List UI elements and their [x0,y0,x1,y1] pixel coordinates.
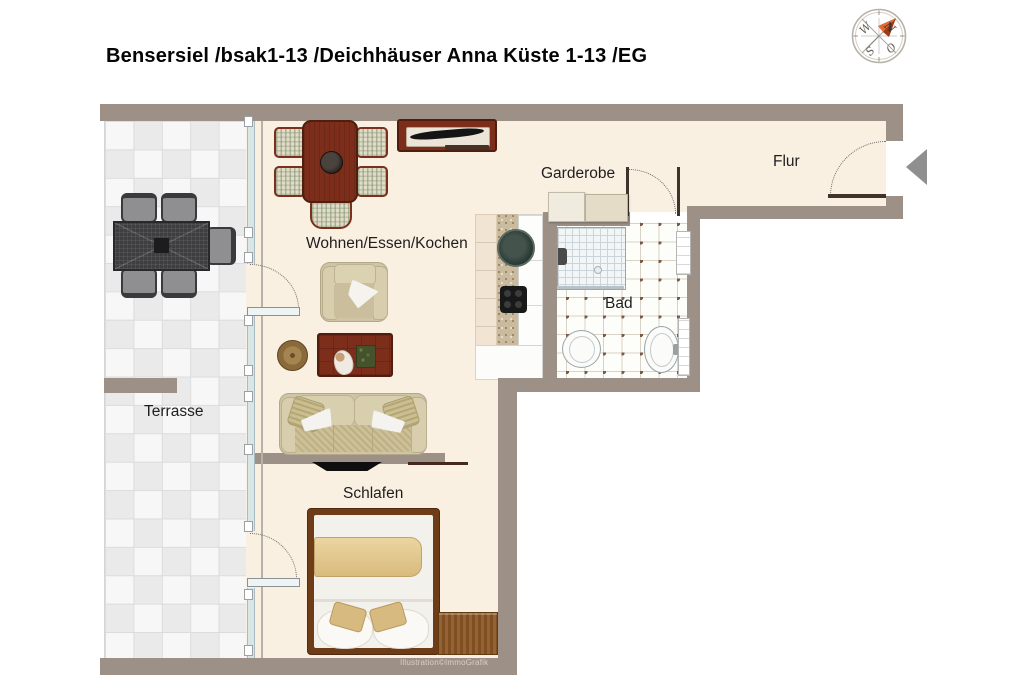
kitchen-base-cabinet [475,345,543,380]
wall-right-upper [886,104,903,141]
entrance-door [828,194,886,198]
wall-bathroom-bottom [498,378,700,392]
window-frame-block [244,315,253,326]
dresser [438,612,498,655]
dining-chair [356,166,388,197]
armchair [320,262,388,322]
coffee-table-figurine [331,348,355,377]
shower-drain [594,266,602,274]
outdoor-chair [161,193,197,223]
window-frame-block [244,227,253,238]
sideboard [397,119,497,152]
living-terrace-door [247,307,300,316]
window-frame-block [244,252,253,263]
kitchen-stove [500,286,527,313]
outdoor-table [113,221,210,271]
bed [307,508,440,655]
washbasin [644,326,679,373]
room-label-hallway: Flur [773,153,800,171]
bed-blanket [314,537,422,577]
window-frame-block [244,391,253,402]
towel-radiator [676,231,691,275]
room-label-bathroom: Bad [605,295,633,313]
entrance-arrow-icon [906,149,927,185]
round-rug [277,340,308,371]
coffee-table-plant [356,345,376,368]
bathroom-radiator [678,318,690,376]
wall-terrace-stub [104,378,177,393]
wall-shelf-line [408,462,468,465]
bathroom-door-jamb [677,167,680,216]
room-label-bedroom: Schlafen [343,485,403,503]
window-frame-block [244,444,253,455]
room-label-living: Wohnen/Essen/Kochen [306,235,468,253]
window-frame-block [244,645,253,656]
dining-chair [310,200,352,229]
compass-rose: W S O N [849,6,909,66]
window-frame-block [244,589,253,600]
room-label-terrace: Terrasse [144,403,203,421]
window-frame-block [244,521,253,532]
outdoor-chair [121,193,157,223]
glass-pane [247,121,255,264]
wall-hallway-bottom [687,206,903,219]
coffee-table [317,333,393,377]
toilet [562,330,601,368]
wall-top [100,104,903,121]
window-frame-block [244,116,253,127]
bedroom-terrace-door [247,578,300,587]
sideboard-tray [445,145,489,150]
shower-glass-edge [557,286,624,289]
dining-chair [356,127,388,158]
watermark: Illustration©ImmoGrafik [400,658,488,667]
floor-plan-page: Bensersiel /bsak1-13 /Deichhäuser Anna K… [0,0,1024,683]
kitchen-sink [497,229,535,267]
wall-bedroom-right [498,378,517,663]
outdoor-chair [161,268,197,298]
wardrobe-cabinet [548,192,628,222]
table-centerpiece [320,151,343,174]
kitchen-unit [475,214,543,380]
dining-table [302,120,358,203]
window-frame-block [244,365,253,376]
shower [557,227,626,290]
page-title: Bensersiel /bsak1-13 /Deichhäuser Anna K… [106,45,647,68]
glass-pane [247,316,255,531]
wall-bathroom-left [543,212,557,392]
shower-fixture-icon [558,248,567,265]
outdoor-chair [121,268,157,298]
bed-sheet-fold [314,599,433,602]
room-label-wardrobe: Garderobe [541,165,615,183]
outdoor-chair [206,227,236,265]
sofa [279,393,427,455]
